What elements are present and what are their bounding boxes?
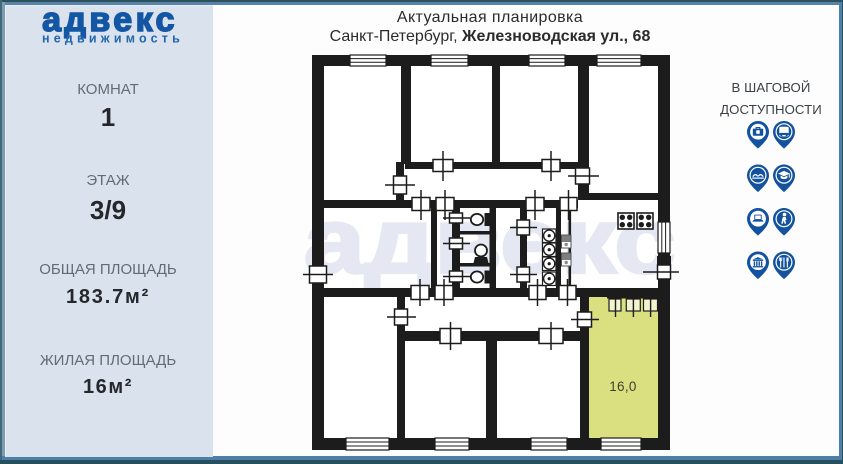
svg-text:16,0: 16,0 [609, 379, 636, 394]
svg-text:недвижимость: недвижимость [42, 32, 184, 46]
